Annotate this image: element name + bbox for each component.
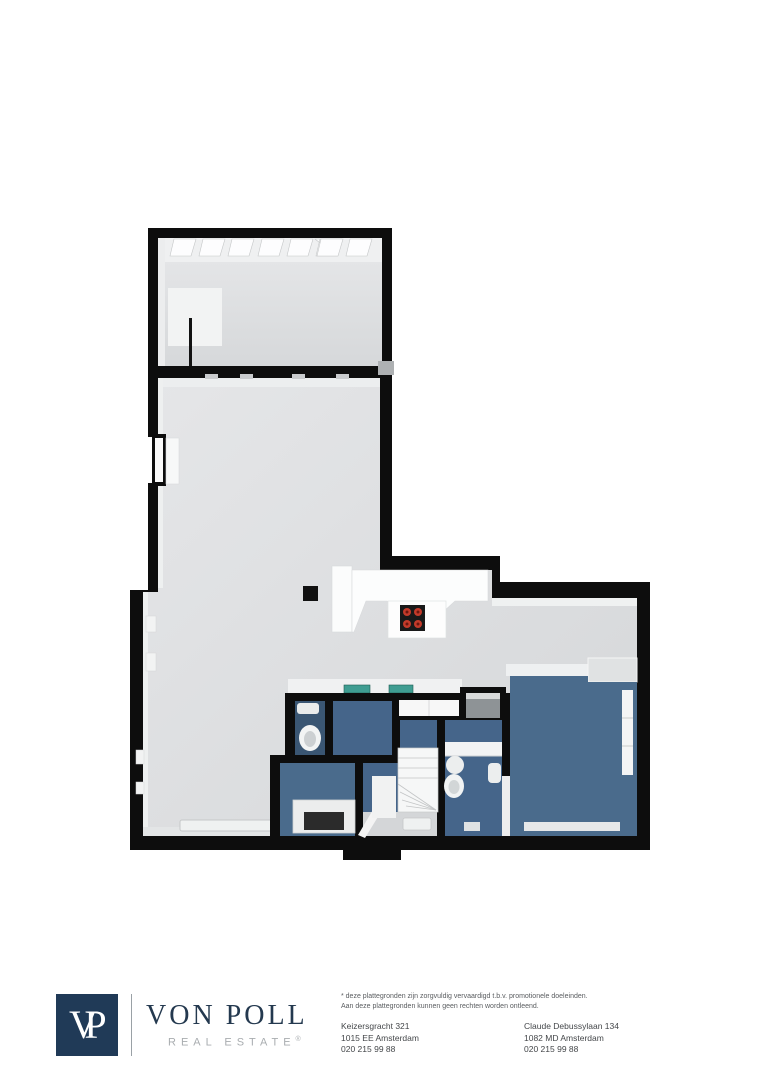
- vanity-counter: [288, 679, 462, 695]
- sink-icon: [344, 685, 370, 693]
- floor-plan: [0, 0, 764, 970]
- bedroom-bottom-strip: [524, 822, 620, 831]
- page: VP VON POLL REAL ESTATE® * deze plattegr…: [0, 0, 764, 1080]
- office-address-1: Keizersgracht 321 1015 EE Amsterdam 020 …: [341, 1021, 524, 1056]
- vp-monogram-text: VP: [69, 1005, 105, 1045]
- attic-left-highlight: [158, 238, 165, 366]
- bedroom: [506, 658, 637, 836]
- office-address-2: Claude Debussylaan 134 1082 MD Amsterdam…: [524, 1021, 707, 1056]
- logo-divider: [131, 994, 132, 1056]
- attic-closet: [168, 288, 222, 346]
- bathroom-floor: [333, 701, 392, 755]
- brand-logo: VP VON POLL REAL ESTATE®: [56, 994, 308, 1056]
- footer-text: * deze plattegronden zijn zorgvuldig ver…: [341, 992, 707, 1056]
- wall-white: [502, 776, 511, 836]
- toilet-tank: [446, 756, 464, 774]
- disclaimer: * deze plattegronden zijn zorgvuldig ver…: [341, 992, 707, 1011]
- entrance-porch: [343, 843, 401, 860]
- office2-phone: 020 215 99 88: [524, 1044, 707, 1056]
- toilet-room: [295, 701, 325, 755]
- stair-landing: [372, 776, 396, 818]
- left-window: [146, 434, 179, 486]
- bathroom-block: [270, 679, 511, 838]
- small-bathroom: [444, 720, 511, 836]
- office1-city: 1015 EE Amsterdam: [341, 1033, 524, 1045]
- wall-highlight: [158, 378, 380, 387]
- brand-tagline-text: REAL ESTATE: [168, 1036, 296, 1048]
- floor-plan-svg: [0, 0, 764, 970]
- office2-street: Claude Debussylaan 134: [524, 1021, 707, 1033]
- disclaimer-line-2: Aan deze plattegronden kunnen geen recht…: [341, 1002, 707, 1012]
- washbasin-icon: [297, 703, 319, 714]
- closet-top: [466, 693, 500, 699]
- office1-phone: 020 215 99 88: [341, 1044, 524, 1056]
- closet-gray: [466, 699, 500, 718]
- wall-highlight: [492, 598, 637, 606]
- radiator: [403, 818, 431, 830]
- addresses: Keizersgracht 321 1015 EE Amsterdam 020 …: [341, 1021, 707, 1056]
- attic-room: [158, 238, 394, 375]
- attic-partition-line: [189, 318, 192, 366]
- footer: VP VON POLL REAL ESTATE® * deze plattegr…: [0, 988, 764, 1080]
- office1-street: Keizersgracht 321: [341, 1021, 524, 1033]
- sink-icon: [389, 685, 413, 693]
- bedroom-step: [588, 658, 637, 682]
- disclaimer-line-1: * deze plattegronden zijn zorgvuldig ver…: [341, 992, 707, 1002]
- bench-inset: [304, 812, 344, 830]
- staircase: [398, 748, 438, 812]
- shower-drain: [464, 822, 480, 831]
- lower-room: [280, 763, 355, 836]
- shelf: [445, 742, 502, 756]
- toilet-bowl: [449, 780, 460, 794]
- column: [303, 586, 318, 601]
- attic-corner-tab: [378, 361, 394, 375]
- office2-city: 1082 MD Amsterdam: [524, 1033, 707, 1045]
- radiator: [622, 690, 633, 775]
- cooktop-icon: [400, 605, 425, 631]
- registered-mark: ®: [296, 1036, 301, 1043]
- bedroom-floor: [510, 676, 637, 836]
- brand-text: VON POLL REAL ESTATE®: [146, 1002, 308, 1049]
- kitchen-tall-cabinet: [332, 566, 352, 632]
- toilet-bowl: [304, 731, 316, 747]
- vp-monogram: VP: [56, 994, 118, 1056]
- washbasin-icon: [488, 763, 501, 783]
- brand-name: VON POLL: [146, 1002, 308, 1030]
- brand-tagline: REAL ESTATE®: [146, 1036, 308, 1049]
